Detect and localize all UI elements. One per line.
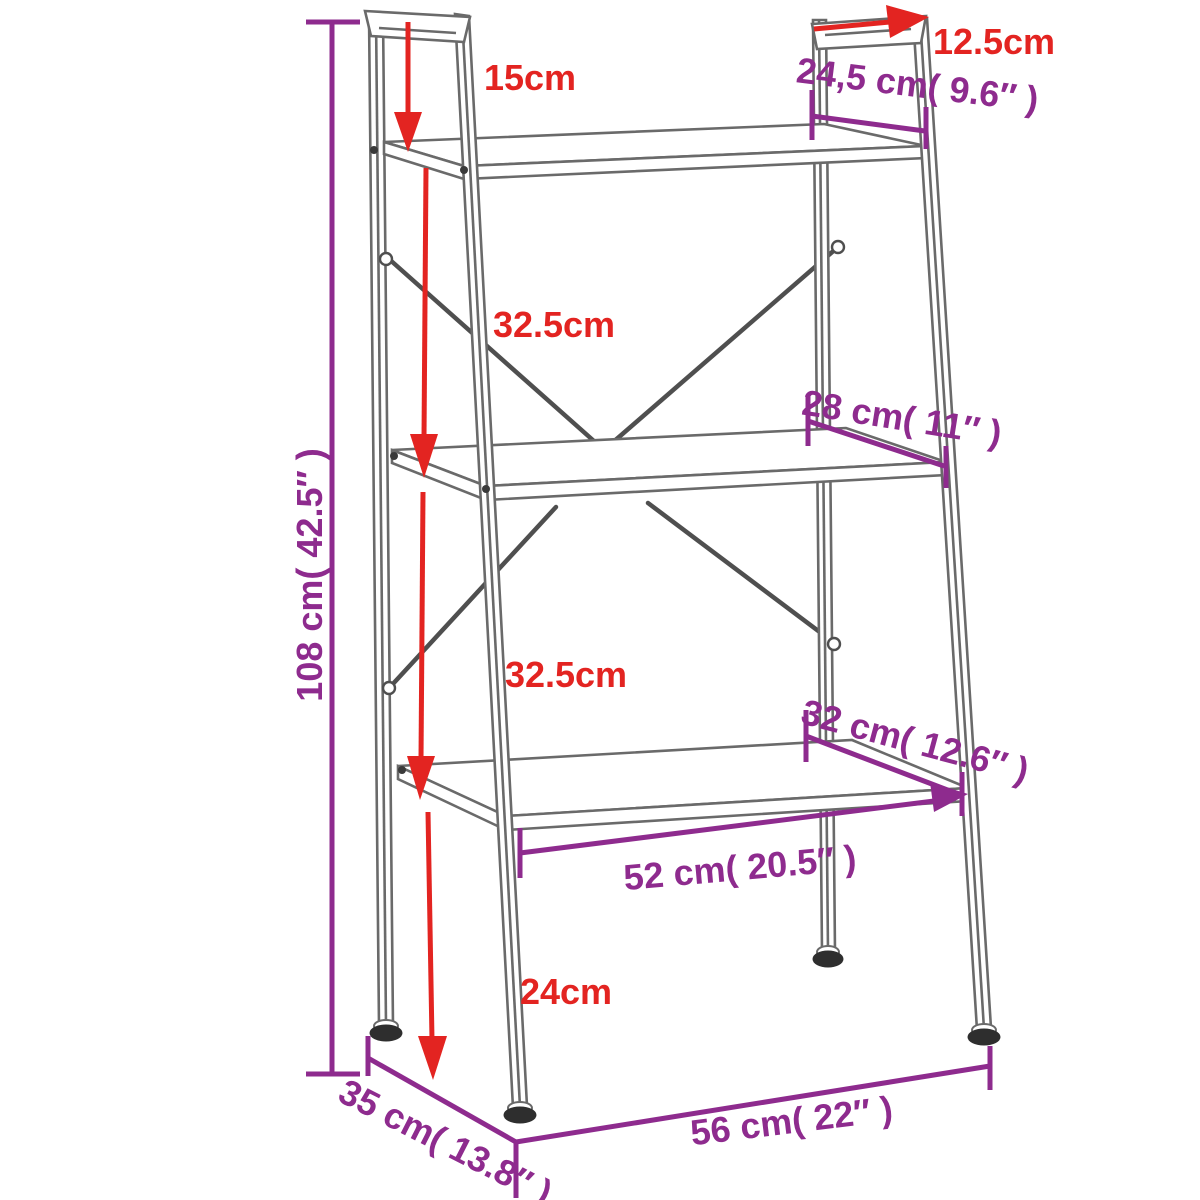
screw-icon	[832, 241, 844, 253]
top-bar-left	[365, 11, 470, 42]
arrow-top-clearance	[394, 22, 422, 152]
arrow-shelf1-shelf2	[410, 168, 438, 478]
screw-icon	[828, 638, 840, 650]
shelf-unit-drawing	[365, 11, 1000, 1123]
screw-icon	[380, 253, 392, 265]
front-right-leg	[913, 16, 991, 1030]
purple-dimensions	[306, 22, 990, 1198]
screw-icon	[383, 682, 395, 694]
label-shelf1-to-shelf2: 32.5cm	[493, 304, 615, 345]
foot-front-left	[504, 1102, 536, 1123]
arrow-head	[418, 1036, 447, 1080]
dimension-labels: 15cm 12.5cm 24,5 cm( 9.6″ ) 108 cm( 42.5…	[289, 21, 1055, 1200]
rear-left-leg	[369, 14, 393, 1026]
label-ground-clearance: 24cm	[520, 971, 612, 1012]
foot-rear-right	[813, 946, 843, 967]
ladder-shelf-dimension-diagram: 15cm 12.5cm 24,5 cm( 9.6″ ) 108 cm( 42.5…	[0, 0, 1200, 1200]
label-top-clearance: 15cm	[484, 57, 576, 98]
foot-front-right	[968, 1024, 1000, 1045]
foot-rear-left	[370, 1020, 402, 1041]
arrow-ground-clearance	[418, 812, 447, 1080]
label-overall-height: 108 cm( 42.5″ )	[289, 448, 330, 701]
label-shelf2-to-shelf3: 32.5cm	[505, 654, 627, 695]
diagram-svg: 15cm 12.5cm 24,5 cm( 9.6″ ) 108 cm( 42.5…	[0, 0, 1200, 1200]
brace-lower-right	[648, 503, 833, 642]
label-top-bar-depth: 12.5cm	[933, 21, 1055, 62]
brace-upper-left	[389, 259, 604, 450]
shelf-bottom	[398, 740, 968, 830]
